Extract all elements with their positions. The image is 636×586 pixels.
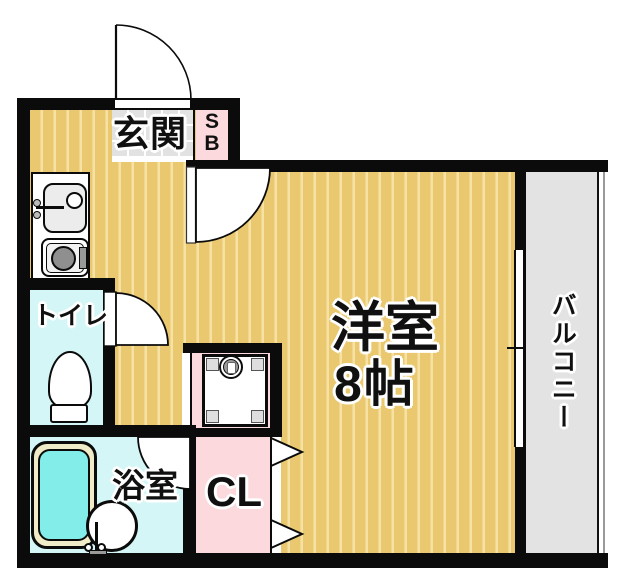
shoe-box-label: S B [196,111,228,159]
shoe-box-line2: B [196,133,228,155]
entrance-label: 玄関 [113,115,187,153]
room-door-swing [196,168,270,242]
toilet-door-swing [116,293,168,345]
shoe-box-line1: S [196,111,228,133]
entrance-door-arc [116,25,191,100]
closet-label: CL [206,470,262,514]
closet-folding-door-icon [271,438,302,466]
bathroom-label: 浴室 [112,469,178,504]
main-room-label: 洋室 [331,300,439,357]
main-room-size-label: 8帖 [334,358,416,411]
room-door-leaf [187,167,196,243]
toilet-label: トイレ [33,303,108,329]
floor-plan: 玄関 S B トイレ 浴室 CL 洋室 8帖 バルコニー [0,0,636,586]
closet-folding-door-icon [271,520,302,548]
door-symbols-layer [0,0,636,586]
balcony-label: バルコニー [549,292,575,432]
